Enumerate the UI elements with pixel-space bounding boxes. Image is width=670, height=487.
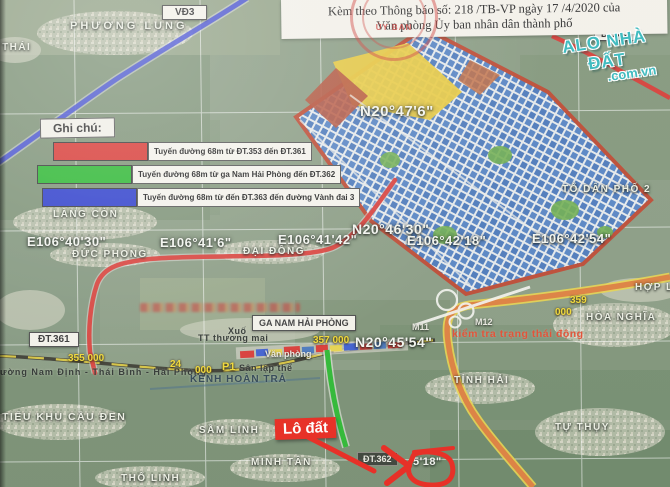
place-hop-l: HỢP L — [635, 282, 670, 293]
km-label-359-000: 000 — [555, 307, 572, 318]
place-duc-phong: ĐỨC PHONG — [72, 249, 148, 260]
coord-e106-41-6: E106°41'6" — [160, 235, 232, 250]
place-tu-thuy: TỰ THỤY — [555, 422, 610, 433]
legend-item-blue: Tuyến đường 68m từ đến ĐT.363 đến đường … — [42, 188, 360, 207]
legend: Ghi chú: Tuyến đường 68m từ ĐT.353 đến Đ… — [36, 118, 360, 207]
place-to-dan-pho-2: TỔ DÂN PHỐ 2 — [562, 184, 651, 195]
stamp-text: ỦY BAN — [353, 23, 435, 32]
road-box-dt362: ĐT.362 — [357, 452, 398, 466]
legend-item-green: Tuyến đường 68m từ ga Nam Hải Phòng đến … — [37, 165, 360, 184]
legend-label-green: Tuyến đường 68m từ ga Nam Hải Phòng đến … — [132, 165, 341, 184]
km-label-359: 359 — [570, 295, 587, 306]
note-tt-thuong-mai: TT thương mại — [198, 333, 268, 343]
coord-e106-41-42: E106°41'42" — [278, 232, 357, 247]
lo-dat-tag: Lô đất — [275, 417, 337, 440]
red-note-text: kiểm tra trạng thái động — [452, 328, 584, 340]
place-tho-linh: THỔ LINH — [121, 473, 180, 484]
legend-swatch-blue — [42, 188, 137, 207]
legend-title: Ghi chú: — [40, 117, 115, 138]
legend-swatch-green — [37, 165, 132, 184]
station-box-ga-nam-hai-phong: GA NAM HẢI PHÒNG — [252, 315, 356, 331]
legend-label-red: Tuyến đường 68m từ ĐT.353 đến ĐT.361 — [148, 142, 312, 161]
note-m12: M12 — [475, 317, 493, 327]
place-tinh-hai: TỈNH HẢI — [454, 375, 509, 386]
coord-n20-45-54: N20°45'54" — [355, 334, 432, 350]
legend-swatch-red — [53, 142, 148, 161]
km-label-p1: P1 — [222, 361, 235, 373]
coord-e106-40-30: E106°40'30" — [27, 234, 106, 249]
place-minh-tan: MINH TÂN — [251, 457, 312, 468]
place-phuong-lung: PHƯƠNG LUNG — [70, 20, 188, 32]
road-box-vd3: VĐ3 — [162, 5, 207, 20]
place-kenh-hoan-tra: KÊNH HOÀN TRẢ — [190, 374, 287, 385]
km-label-355: 355 000 — [68, 353, 104, 364]
road-box-dt361: ĐT.361 — [29, 332, 79, 347]
place-hoa-nghia: HÒA NGHĨA — [586, 312, 656, 323]
km-label-24: 24 — [170, 359, 181, 370]
legend-label-blue: Tuyến đường 68m từ đến ĐT.363 đến đường … — [137, 188, 360, 207]
place-tieu-khu-cau-den: TIỂU KHU CẦU ĐEN — [2, 411, 126, 423]
coord-partial-45-18: 5'18" — [413, 456, 442, 468]
legend-item-red: Tuyến đường 68m từ ĐT.353 đến ĐT.361 — [53, 142, 360, 161]
km-label-357: 357 000 — [313, 335, 349, 346]
note-van-phong: Văn phòng — [265, 349, 312, 359]
map-photo: Ghi chú: Tuyến đường 68m từ ĐT.353 đến Đ… — [0, 0, 670, 487]
place-thai: THÁI — [2, 42, 31, 53]
note-m11: M11 — [412, 322, 429, 332]
coord-n20-47-6: N20°47'6" — [360, 103, 434, 120]
illegible-red-text — [140, 303, 300, 312]
place-lang-con: LÀNG CÒN — [53, 209, 118, 220]
place-dai-dong: ĐẠI ĐỒNG — [243, 246, 305, 257]
place-sam-linh: SẦM LINH — [199, 425, 259, 436]
coord-e106-42-18: E106°42'18" — [407, 233, 486, 248]
coord-e106-42-54: E106°42'54" — [532, 231, 611, 246]
note-san-lap-the: Sân lập thể — [239, 363, 293, 373]
